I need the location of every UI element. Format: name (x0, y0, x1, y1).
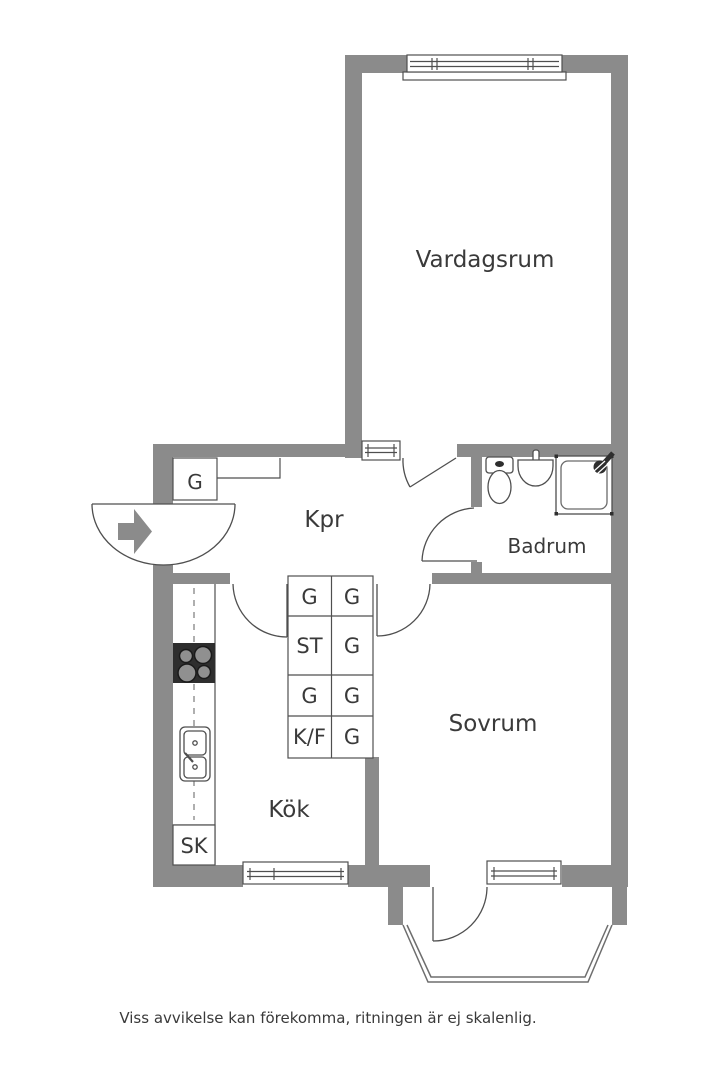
wall-segment (365, 757, 379, 865)
bathroom-fixtures (486, 450, 614, 516)
floorplan-drawing: Vardagsrum Kpr Badrum Sovrum Kök G SK G … (0, 0, 720, 1080)
room-label-living-room: Vardagsrum (416, 247, 555, 273)
wall-segment (153, 865, 243, 887)
wall-segment (153, 565, 173, 887)
floorplan-page: Vardagsrum Kpr Badrum Sovrum Kök G SK G … (0, 0, 720, 1080)
wall-segment (388, 887, 403, 925)
cabinet-cell-label: ST (296, 634, 322, 658)
wall-segment (348, 865, 430, 887)
kitchen-door (233, 584, 287, 637)
closet-label-g: G (187, 470, 203, 494)
cabinet-cell-label: G (344, 634, 360, 658)
hall-shelf-outline (217, 458, 280, 478)
burner (195, 647, 212, 664)
wall-segment (611, 55, 628, 887)
wall-segment (153, 444, 173, 504)
kitchen-sink (180, 727, 210, 781)
room-label-kitchen: Kök (268, 797, 310, 823)
room-label-hallway: Kpr (304, 507, 344, 533)
cabinet-cell-label: K/F (293, 725, 326, 749)
kitchen-counter (173, 584, 215, 865)
wall-segment (562, 865, 628, 887)
cabinet-cell-label: G (344, 725, 360, 749)
wall-segment (457, 444, 628, 457)
windows (243, 55, 566, 884)
wall-segment (345, 55, 362, 458)
flush-button (495, 461, 504, 467)
wall-segment (153, 444, 362, 457)
kitchen-window (243, 862, 348, 884)
entrance-arrow-icon (118, 509, 152, 554)
hallway-window (362, 441, 400, 460)
bedroom-door (377, 584, 430, 636)
closet-label-sk: SK (180, 834, 208, 858)
wall-segment (173, 573, 230, 584)
cabinet-cell-label: G (344, 684, 360, 708)
cabinet-cell-label: G (301, 684, 317, 708)
disclaimer-text: Viss avvikelse kan förekomma, ritningen … (119, 1009, 536, 1027)
bedroom-window (487, 861, 561, 884)
wall-segment (471, 562, 482, 574)
toilet (486, 457, 513, 504)
entrance-door (92, 504, 235, 565)
room-label-bathroom: Badrum (507, 534, 586, 558)
burner (180, 650, 193, 663)
cabinet-cell-label: G (344, 585, 360, 609)
balcony-outline (403, 925, 612, 982)
cabinet-cell-label: G (301, 585, 317, 609)
shower (555, 453, 614, 516)
burner (178, 664, 196, 682)
wall-segment (612, 887, 627, 925)
living-room-door (403, 458, 456, 487)
room-label-bedroom: Sovrum (449, 711, 538, 737)
wall-segment (432, 573, 617, 584)
bathroom-door (422, 508, 477, 561)
balcony-outer-line (403, 925, 612, 982)
balcony-inner-line (407, 925, 608, 977)
burner (198, 666, 211, 679)
wall-segment (471, 457, 482, 507)
living-room-window (403, 55, 566, 80)
stove (173, 643, 215, 683)
balcony-door (433, 887, 487, 941)
